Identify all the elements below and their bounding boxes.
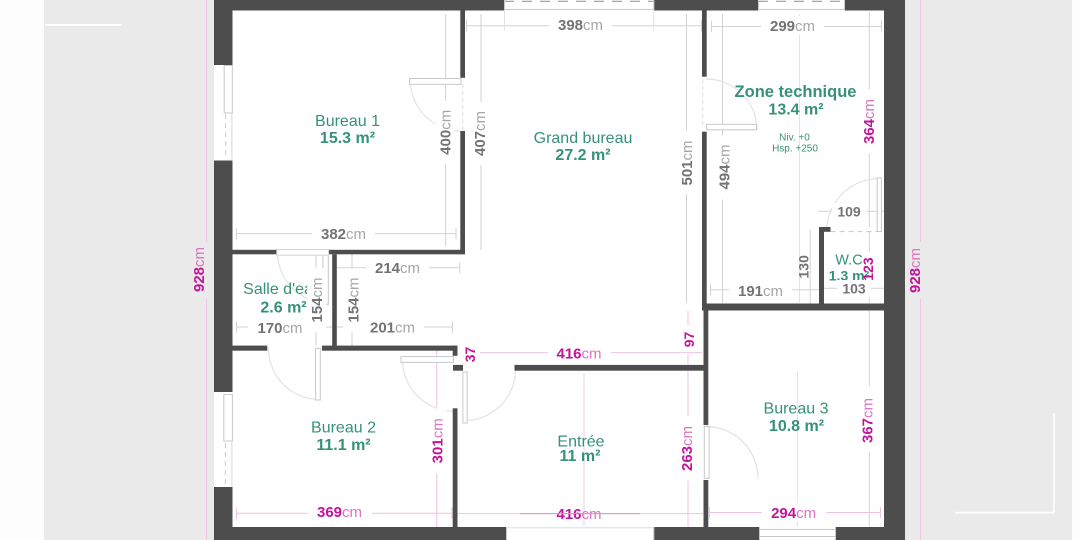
svg-text:Niv. +0: Niv. +0 [779,133,810,144]
svg-text:37: 37 [462,347,478,363]
svg-text:367cm: 367cm [860,398,877,443]
svg-text:369cm: 369cm [317,504,362,521]
svg-text:Bureau 1: Bureau 1 [315,113,380,130]
svg-text:123: 123 [860,257,876,281]
svg-text:214cm: 214cm [375,260,420,277]
svg-text:494cm: 494cm [717,144,734,189]
svg-text:501cm: 501cm [679,140,696,185]
svg-text:416cm: 416cm [556,506,601,523]
svg-text:191cm: 191cm [738,283,783,300]
svg-text:27.2 m²: 27.2 m² [555,147,610,164]
svg-text:15.3 m²: 15.3 m² [320,130,375,147]
svg-text:103: 103 [842,281,866,297]
svg-text:11.1 m²: 11.1 m² [316,437,370,454]
svg-text:170cm: 170cm [257,320,302,337]
svg-text:154cm: 154cm [309,277,326,322]
svg-text:928cm: 928cm [191,247,208,292]
svg-text:416cm: 416cm [556,346,601,363]
svg-text:407cm: 407cm [472,111,489,156]
svg-text:301cm: 301cm [429,418,446,463]
svg-text:Bureau 2: Bureau 2 [311,420,376,437]
svg-text:2.6 m²: 2.6 m² [260,300,306,317]
svg-text:263cm: 263cm [679,426,696,471]
svg-text:109: 109 [837,204,861,220]
svg-text:398cm: 398cm [558,17,603,34]
svg-text:382cm: 382cm [321,226,366,243]
svg-text:11 m²: 11 m² [560,448,601,465]
svg-text:10.8 m²: 10.8 m² [769,418,824,435]
svg-text:400cm: 400cm [438,110,455,155]
svg-text:13.4 m²: 13.4 m² [768,102,823,119]
svg-text:154cm: 154cm [345,277,362,322]
svg-text:Bureau 3: Bureau 3 [764,401,829,418]
svg-text:97: 97 [681,332,697,348]
svg-text:130: 130 [795,255,811,279]
svg-text:928cm: 928cm [907,248,924,293]
svg-text:299cm: 299cm [770,18,815,35]
svg-text:364cm: 364cm [861,99,878,144]
svg-text:Zone technique: Zone technique [735,83,857,101]
svg-text:W.C: W.C [835,253,862,269]
svg-text:294cm: 294cm [771,505,816,522]
svg-text:Hsp. +250: Hsp. +250 [772,144,818,155]
svg-text:201cm: 201cm [370,320,415,337]
svg-text:Grand bureau: Grand bureau [534,130,633,147]
